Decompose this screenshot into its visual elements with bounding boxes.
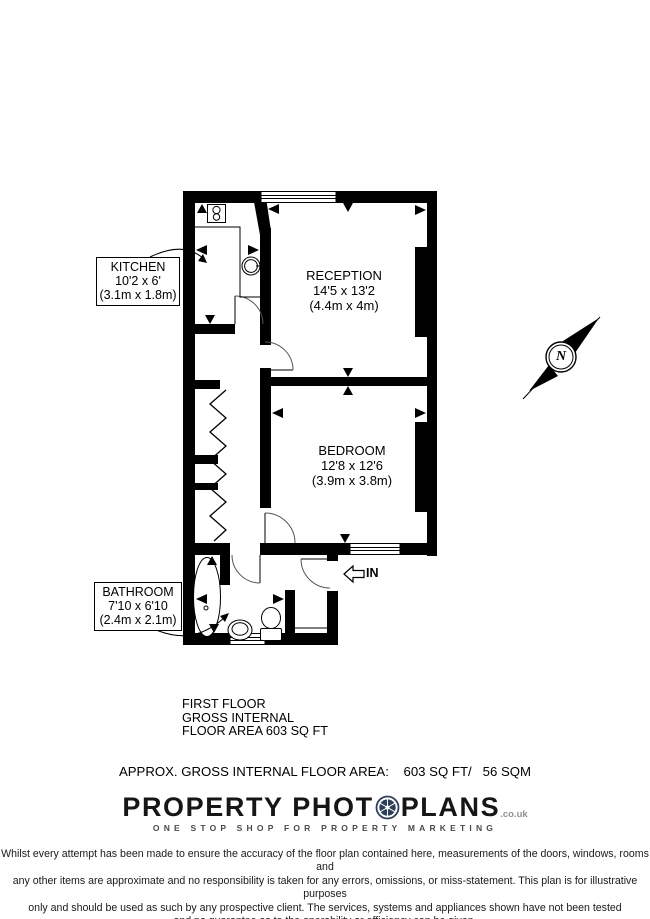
door-bedroom [265, 513, 295, 543]
kitchen-size-imperial: 10'2 x 6' [98, 275, 178, 289]
compass-north-label: N [552, 349, 570, 365]
bedroom-size-metric: (3.9m x 3.8m) [272, 473, 432, 488]
approx-area-line: APPROX. GROSS INTERNAL FLOOR AREA: 603 S… [0, 764, 650, 779]
kitchen-sink-icon [242, 257, 261, 275]
arrow-kitchen-left [196, 245, 207, 255]
summary-basis: GROSS INTERNAL [182, 712, 328, 726]
window-bedroom-bottom [350, 544, 400, 555]
disclaimer-line-4: and no guarantee as to the operability o… [0, 915, 650, 919]
arrow-angle-left [268, 204, 279, 214]
disclaimer-line-2: any other items are approximate and no r… [0, 875, 650, 902]
floorplan-page: KITCHEN 10'2 x 6' (3.1m x 1.8m) RECEPTIO… [0, 0, 650, 919]
arrow-bathroom-right [273, 594, 284, 604]
arrow-kitchen-up [197, 204, 207, 213]
arrow-kitchen-right [248, 245, 259, 255]
disclaimer: Whilst every attempt has been made to en… [0, 848, 650, 919]
arrow-bedroom-down [340, 534, 350, 543]
bathroom-size-metric: (2.4m x 2.1m) [96, 614, 180, 628]
reception-size-imperial: 14'5 x 13'2 [264, 283, 424, 298]
stairs-icon [210, 390, 226, 541]
bedroom-size-imperial: 12'8 x 12'6 [272, 458, 432, 473]
bedroom-label: BEDROOM 12'8 x 12'6 (3.9m x 3.8m) [272, 443, 432, 488]
walls [183, 191, 437, 645]
arrow-reception-down [343, 203, 353, 212]
area-summary: FIRST FLOOR GROSS INTERNAL FLOOR AREA 60… [182, 698, 328, 739]
reception-size-metric: (4.4m x 4m) [264, 298, 424, 313]
basin-icon [228, 620, 252, 640]
disclaimer-line-1: Whilst every attempt has been made to en… [0, 848, 650, 875]
disclaimer-line-3: only and should be used as such by any p… [0, 902, 650, 915]
arrow-divider-down [343, 368, 353, 377]
logo-tagline: ONE STOP SHOP FOR PROPERTY MARKETING [0, 823, 650, 833]
kitchen-size-metric: (3.1m x 1.8m) [98, 289, 178, 303]
logo-text-right: PLANS [401, 792, 501, 823]
camera-lens-icon [375, 795, 400, 820]
bathroom-name: BATHROOM [96, 586, 180, 600]
bathroom-size-imperial: 7'10 x 6'10 [96, 600, 180, 614]
arrow-reception-right [415, 205, 426, 215]
door-kitchen [235, 296, 263, 324]
window-reception-top [261, 192, 336, 203]
door-reception [265, 342, 293, 370]
toilet-icon [261, 608, 282, 641]
logo: PROPERTY PHOT PLANS .co.uk [0, 792, 650, 823]
reception-label: RECEPTION 14'5 x 13'2 (4.4m x 4m) [264, 268, 424, 313]
arrow-kitchen-down [205, 315, 215, 324]
logo-text-left: PROPERTY PHOT [122, 792, 373, 823]
door-bathroom [232, 555, 260, 583]
door-entrance [301, 559, 330, 588]
entrance-in-arrow-icon [344, 566, 364, 582]
reception-name: RECEPTION [264, 268, 424, 283]
arrow-divider-up [343, 386, 353, 395]
entrance-in-label: IN [366, 566, 379, 580]
kitchen-label-box: KITCHEN 10'2 x 6' (3.1m x 1.8m) [96, 257, 180, 306]
bedroom-name: BEDROOM [272, 443, 432, 458]
arrow-bedroom-right [415, 408, 426, 418]
summary-floor: FIRST FLOOR [182, 698, 328, 712]
hob-icon [208, 205, 226, 223]
logo-domain: .co.uk [500, 809, 527, 820]
summary-area: FLOOR AREA 603 SQ FT [182, 725, 328, 739]
bathroom-label-box: BATHROOM 7'10 x 6'10 (2.4m x 2.1m) [94, 582, 182, 631]
arrow-bedroom-left [272, 408, 283, 418]
kitchen-name: KITCHEN [98, 261, 178, 275]
